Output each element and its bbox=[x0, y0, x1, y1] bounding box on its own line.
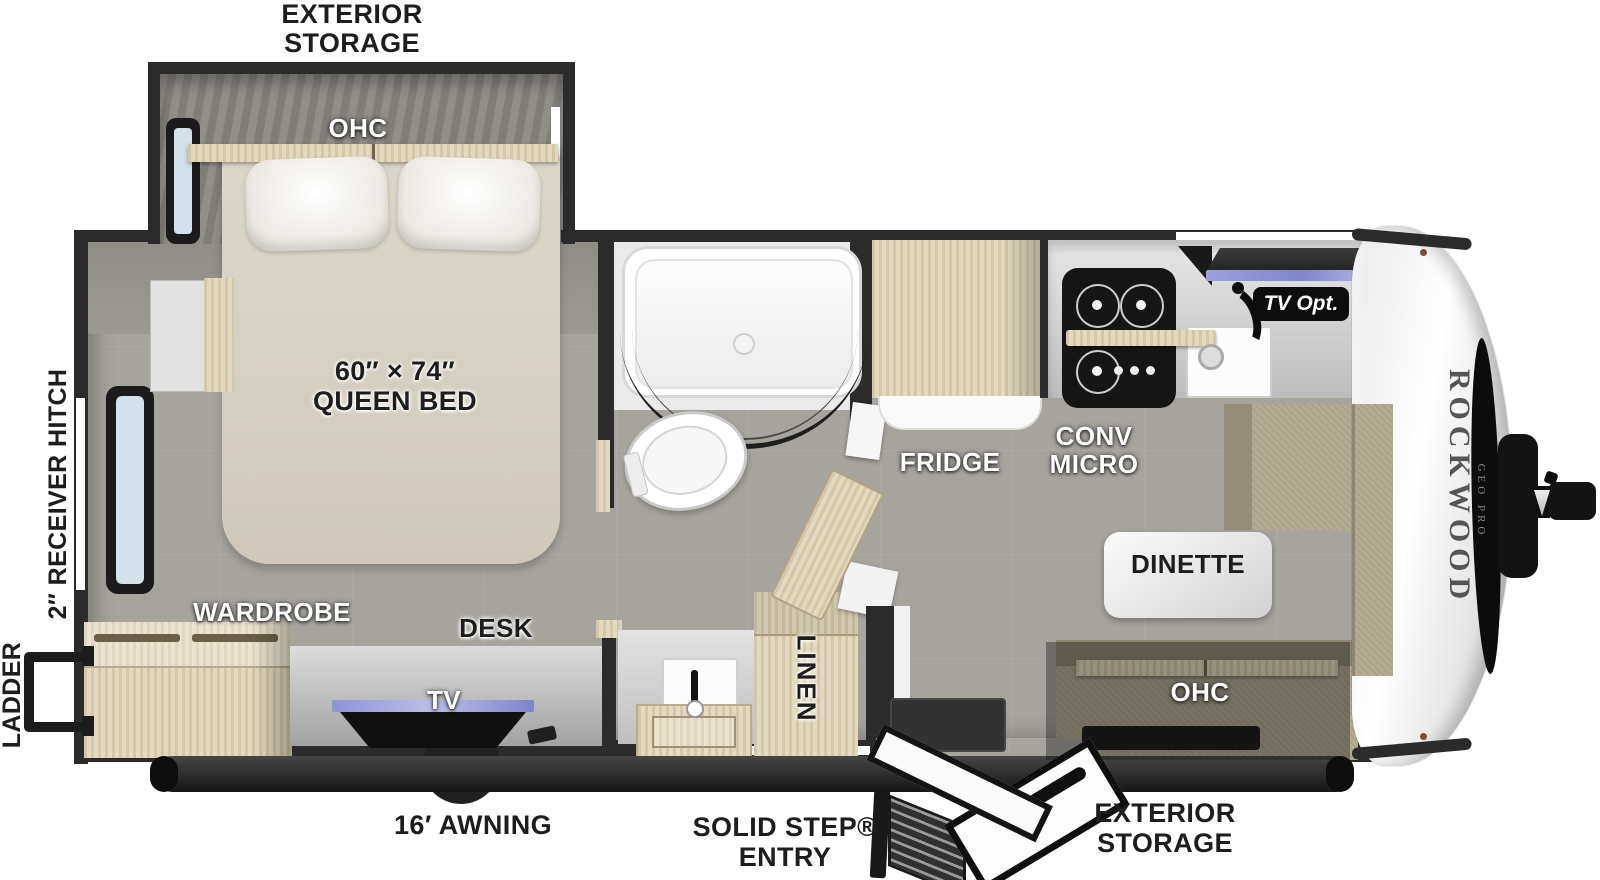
desk-wall-stub bbox=[602, 634, 616, 760]
label-conv-micro: CONV MICRO bbox=[1014, 422, 1174, 478]
fridge-divider bbox=[1040, 240, 1048, 398]
cooktop-knob bbox=[1114, 366, 1123, 375]
burner bbox=[1076, 284, 1120, 328]
wardrobe-side-shade bbox=[252, 622, 292, 758]
faucet-mount bbox=[1232, 282, 1244, 294]
tv-unit bbox=[340, 712, 526, 748]
dinette-bench-back-top bbox=[1224, 404, 1252, 530]
label-desk-tv: TV bbox=[414, 686, 474, 715]
wardrobe-slot-1 bbox=[94, 634, 180, 642]
bathroom-wall-cap bbox=[596, 440, 610, 512]
bedroom-window-glass bbox=[116, 396, 144, 584]
label-receiver-hitch: 2″ RECEIVER HITCH bbox=[44, 359, 72, 629]
fridge-side-shade bbox=[1002, 240, 1042, 398]
vanity-drain bbox=[686, 700, 704, 718]
cap-rivet-bottom bbox=[1420, 733, 1427, 740]
label-line: ENTRY bbox=[660, 842, 910, 872]
top-wall-left bbox=[74, 230, 160, 242]
bedside-cabinet bbox=[150, 280, 206, 392]
ladder-bracket-bottom bbox=[82, 716, 94, 736]
label-line: CONV bbox=[1014, 422, 1174, 450]
label-line: MICRO bbox=[1014, 450, 1174, 478]
bedroom-window-frame bbox=[106, 386, 154, 594]
ladder-rung-bottom bbox=[26, 722, 88, 732]
awning-end-right bbox=[1326, 756, 1354, 792]
label-dinette: DINETTE bbox=[1104, 550, 1272, 579]
slideout-window-frame bbox=[166, 118, 200, 244]
label-wardrobe: WARDROBE bbox=[162, 598, 382, 627]
vanity-stool-top bbox=[652, 716, 736, 748]
dinette-bench-front bbox=[1352, 404, 1393, 676]
cooktop-knob bbox=[1146, 366, 1155, 375]
dinette-bench-top bbox=[1252, 404, 1360, 530]
sink-drain bbox=[1198, 344, 1224, 370]
label-line: STORAGE bbox=[242, 29, 462, 58]
label-dinette-ohc: OHC bbox=[1160, 678, 1240, 707]
brand-logo: ROCKWOOD bbox=[1442, 352, 1476, 622]
cutting-board bbox=[1066, 330, 1216, 346]
ladder-bracket-top bbox=[82, 646, 94, 666]
fridge-cabinet bbox=[872, 240, 1042, 398]
label-ladder: LADDER bbox=[0, 620, 26, 770]
label-exterior-storage-bottom: EXTERIOR STORAGE bbox=[1055, 798, 1275, 858]
label-line: 60″ × 74″ bbox=[295, 356, 495, 386]
propane-cover bbox=[1498, 434, 1538, 578]
hitch-coupler bbox=[1548, 482, 1596, 520]
pillow-left bbox=[244, 156, 389, 253]
storage-tray bbox=[1082, 726, 1260, 750]
cap-rivet-top bbox=[1420, 249, 1427, 256]
label-bed-ohc: OHC bbox=[308, 114, 408, 143]
label-solid-step-entry: SOLID STEP® ENTRY bbox=[660, 812, 910, 872]
brand-series: GEO PRO bbox=[1473, 431, 1487, 571]
label-fridge: FRIDGE bbox=[890, 448, 1010, 477]
rv-floorplan: ROCKWOOD GEO PRO EXTERIOR STORAGE OHC 60… bbox=[0, 0, 1600, 880]
label-queen-bed: 60″ × 74″ QUEEN BED bbox=[295, 356, 495, 416]
pillow-right bbox=[396, 156, 541, 253]
label-line: SOLID STEP® bbox=[660, 812, 910, 842]
awning-end-left bbox=[150, 756, 178, 792]
rear-window-marker bbox=[76, 398, 85, 590]
label-exterior-storage-top: EXTERIOR STORAGE bbox=[242, 0, 462, 58]
label-desk: DESK bbox=[446, 614, 546, 643]
label-tv-opt: TV Opt. bbox=[1253, 287, 1349, 321]
label-awning: 16′ AWNING bbox=[363, 810, 583, 840]
wardrobe-cabinet bbox=[84, 622, 292, 758]
label-line: QUEEN BED bbox=[295, 386, 495, 416]
burner bbox=[1120, 284, 1164, 328]
ladder-rung-top bbox=[26, 652, 88, 662]
awning-tube bbox=[154, 756, 1354, 792]
label-line: STORAGE bbox=[1055, 828, 1275, 858]
label-linen: LINEN bbox=[791, 599, 820, 759]
label-line: EXTERIOR bbox=[242, 0, 462, 29]
label-line: EXTERIOR bbox=[1055, 798, 1275, 828]
bedside-cabinet-side bbox=[204, 278, 234, 392]
cooktop-knob bbox=[1130, 366, 1139, 375]
